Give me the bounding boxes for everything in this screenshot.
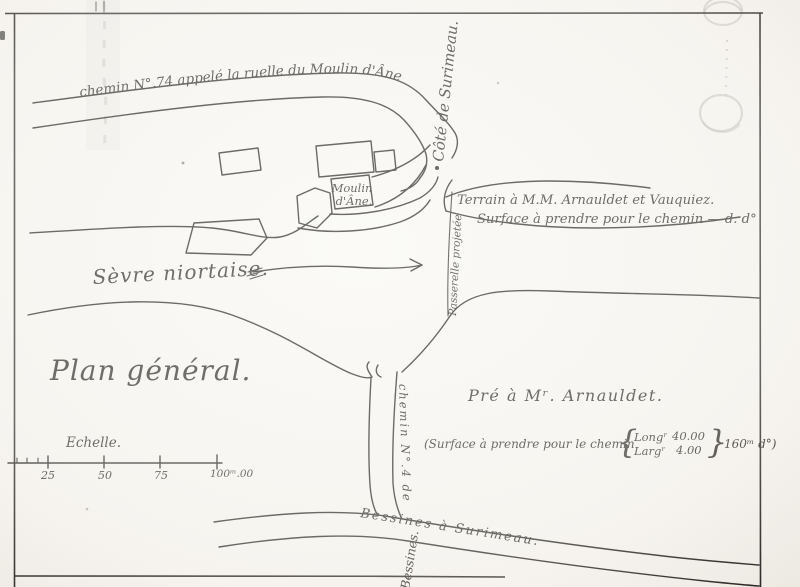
terrain-surface-label: Surface à prendre pour le chemin — d. d° [477, 212, 757, 227]
scan-speck [86, 508, 89, 511]
frame-top-line [5, 13, 763, 14]
surface-note-width-label: Largʳ [633, 444, 665, 458]
scale-tick-25: 25 [40, 469, 55, 482]
moulin-label-line2: d'Âne. [336, 194, 373, 208]
surface-note-width-value: 4.00 [675, 443, 702, 457]
scanned-plan-page: chemin N°.74 appelé la ruelle du Moulin … [0, 0, 800, 587]
scale-tick-50: 50 [98, 469, 112, 482]
surface-note-length-value: 40.00 [671, 429, 705, 443]
surface-note-length-label: Longʳ [633, 430, 667, 444]
frame-bottom-partial-line [14, 576, 505, 577]
plan-drawing: chemin N°.74 appelé la ruelle du Moulin … [0, 0, 800, 587]
plan-title: Plan général. [49, 354, 251, 387]
scale-label: Echelle. [65, 435, 121, 451]
frame-right-line [760, 13, 761, 587]
scan-speck [497, 82, 499, 84]
terrain-owner-label: Terrain à M.M. Arnauldet et Vauquiez. [457, 193, 714, 208]
scan-speck [182, 162, 185, 165]
surimeau-bullet-dot [435, 166, 439, 170]
left-edge-mark [0, 31, 5, 40]
pre-arnauldet-label: Pré à Mʳ. Arnauldet. [467, 386, 663, 405]
scale-tick-100: 100ᵐ.00 [210, 468, 253, 480]
bleedthrough-smudge [86, 0, 120, 150]
surface-note-prefix: (Surface à prendre pour le chemin [424, 437, 635, 451]
moulin-label-line1: Moulin [331, 181, 373, 195]
surface-note-total: 160ᵐ d°) [724, 437, 777, 451]
scale-tick-75: 75 [154, 469, 168, 482]
